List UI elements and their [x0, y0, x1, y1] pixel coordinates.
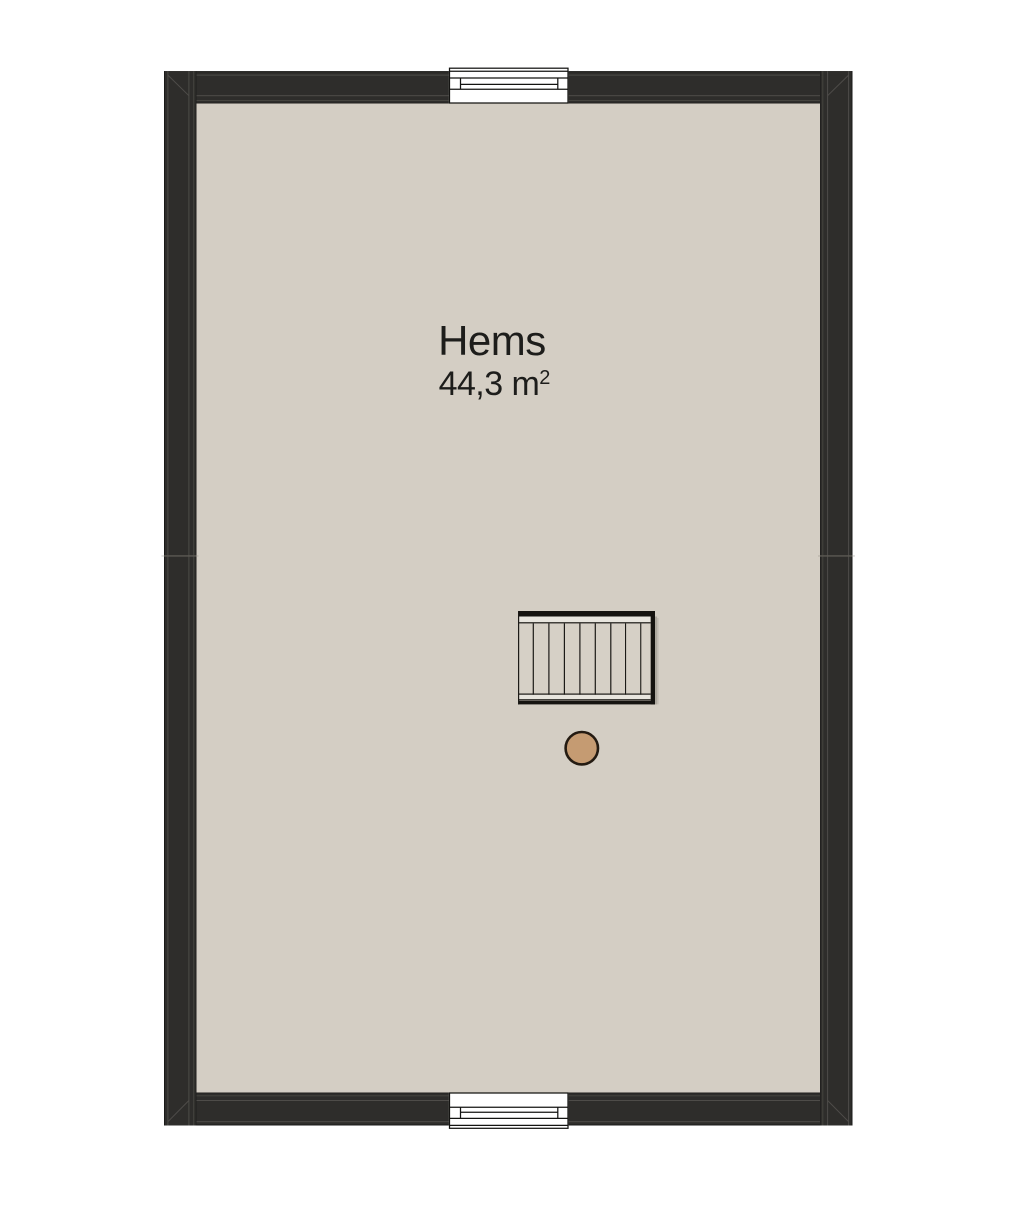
svg-text:Hems: Hems: [438, 317, 546, 364]
svg-text:44,3 m2: 44,3 m2: [439, 365, 551, 403]
